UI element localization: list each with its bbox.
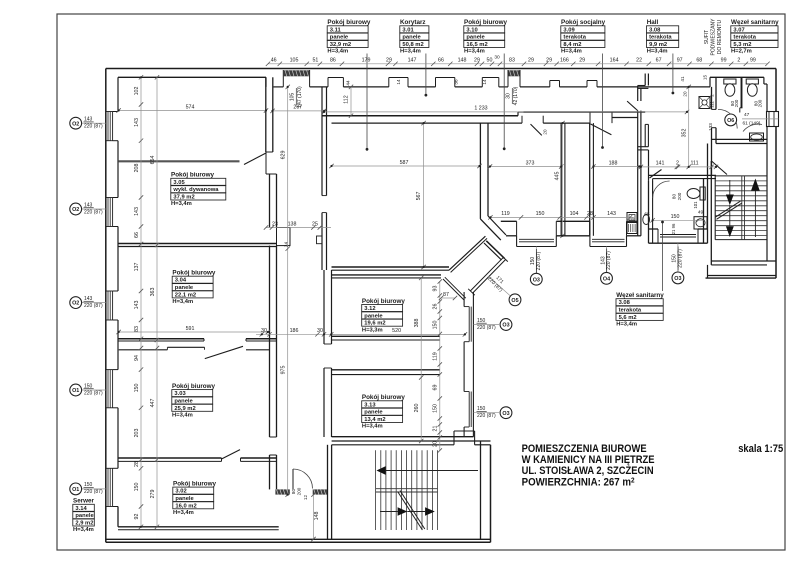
svg-text:29: 29	[386, 58, 392, 64]
svg-text:94: 94	[134, 355, 140, 361]
svg-text:37,9 m2: 37,9 m2	[173, 195, 194, 201]
svg-text:49: 49	[698, 210, 704, 216]
svg-text:50: 50	[487, 58, 493, 64]
svg-text:28: 28	[587, 211, 593, 217]
svg-text:260: 260	[414, 404, 420, 413]
svg-text:629: 629	[280, 151, 286, 160]
svg-text:panele: panele	[364, 410, 383, 416]
svg-text:147: 147	[408, 58, 417, 64]
svg-text:POMIESZCZENIA BIUROWE: POMIESZCZENIA BIUROWE	[522, 443, 647, 455]
svg-text:Serwer: Serwer	[73, 498, 95, 505]
svg-text:21: 21	[432, 426, 438, 432]
svg-text:panele: panele	[174, 399, 193, 405]
svg-text:wykł. dywanowa: wykł. dywanowa	[172, 187, 219, 193]
svg-text:Pokój biurowy: Pokój biurowy	[171, 172, 215, 179]
svg-text:30: 30	[494, 55, 500, 61]
svg-text:terakota: terakota	[649, 35, 672, 41]
svg-text:H=3,4m: H=3,4m	[647, 49, 668, 55]
svg-text:83: 83	[509, 58, 515, 64]
svg-text:166: 166	[560, 58, 569, 64]
svg-text:DO REMONTU: DO REMONTU	[717, 20, 723, 55]
svg-text:220 (87): 220 (87)	[477, 413, 496, 419]
svg-text:220 (87): 220 (87)	[84, 489, 103, 495]
svg-text:O4: O4	[603, 276, 610, 282]
svg-text:66: 66	[134, 232, 140, 238]
svg-text:3.13: 3.13	[364, 402, 376, 408]
svg-text:188: 188	[609, 160, 618, 166]
svg-text:22,1 m2: 22,1 m2	[175, 292, 196, 298]
svg-text:terakota: terakota	[733, 35, 756, 41]
svg-text:2,9 m2: 2,9 m2	[75, 521, 93, 527]
svg-text:19,6 m2: 19,6 m2	[364, 321, 385, 327]
svg-text:220 (87): 220 (87)	[84, 390, 103, 396]
svg-text:Pokój biurowy: Pokój biurowy	[172, 270, 216, 277]
svg-text:3.10: 3.10	[466, 27, 477, 33]
svg-text:69: 69	[432, 385, 438, 391]
svg-text:147 (170): 147 (170)	[297, 86, 303, 108]
svg-text:O3: O3	[674, 276, 681, 282]
svg-text:O2: O2	[72, 207, 79, 213]
svg-text:panele: panele	[75, 513, 94, 519]
svg-text:Hall: Hall	[647, 19, 659, 26]
svg-text:143: 143	[134, 301, 140, 310]
svg-text:3.04: 3.04	[175, 278, 187, 284]
svg-text:H=3,4m: H=3,4m	[173, 510, 194, 516]
svg-text:93: 93	[432, 286, 438, 292]
svg-text:POWIERZCHNIA: 267 m2: POWIERZCHNIA: 267 m2	[522, 476, 635, 488]
svg-text:1 233: 1 233	[474, 106, 487, 112]
svg-text:164: 164	[610, 58, 619, 64]
svg-text:20: 20	[432, 441, 438, 447]
svg-text:36: 36	[454, 79, 459, 85]
svg-text:46: 46	[271, 58, 277, 64]
svg-text:203: 203	[134, 429, 140, 438]
svg-text:200: 200	[734, 99, 739, 107]
svg-text:150: 150	[671, 214, 680, 220]
svg-text:363: 363	[150, 288, 156, 297]
svg-text:29: 29	[546, 58, 552, 64]
svg-text:200: 200	[296, 487, 301, 495]
svg-text:220 (87): 220 (87)	[84, 124, 103, 130]
svg-text:22: 22	[636, 58, 642, 64]
svg-text:67: 67	[656, 58, 662, 64]
svg-text:H=3,4m: H=3,4m	[327, 49, 348, 55]
svg-text:47: 47	[744, 112, 750, 118]
svg-text:150: 150	[432, 404, 438, 413]
svg-text:H=3,4m: H=3,4m	[561, 49, 582, 55]
svg-text:skala 1:75: skala 1:75	[738, 443, 783, 455]
svg-text:83: 83	[134, 326, 140, 332]
svg-text:220 (87): 220 (87)	[536, 251, 542, 270]
svg-text:21 96: 21 96	[671, 223, 676, 234]
svg-text:20: 20	[543, 129, 548, 135]
svg-text:99: 99	[750, 58, 756, 64]
svg-text:29: 29	[474, 58, 480, 64]
svg-text:30: 30	[261, 328, 267, 334]
svg-text:105: 105	[290, 58, 299, 64]
svg-text:W KAMIENICY NA III PIĘTRZE: W KAMIENICY NA III PIĘTRZE	[522, 454, 655, 466]
svg-text:42 (170): 42 (170)	[513, 86, 519, 105]
svg-text:220 (87): 220 (87)	[84, 209, 103, 215]
svg-text:66: 66	[438, 58, 444, 64]
svg-text:5,6 m2: 5,6 m2	[619, 315, 637, 321]
svg-text:H=3,4m: H=3,4m	[171, 201, 192, 207]
svg-text:terakota: terakota	[619, 308, 642, 314]
svg-text:80: 80	[291, 489, 296, 495]
svg-text:Pokój biurowy: Pokój biurowy	[362, 394, 406, 401]
svg-text:Pokój biurowy: Pokój biurowy	[172, 383, 216, 390]
svg-text:Węzeł sanitarny: Węzeł sanitarny	[731, 19, 779, 26]
svg-text:445: 445	[554, 172, 560, 181]
svg-text:587: 587	[400, 160, 409, 166]
svg-text:H=3,3m: H=3,3m	[362, 327, 383, 333]
svg-text:H=3,4m: H=3,4m	[73, 527, 94, 533]
svg-text:15: 15	[702, 75, 707, 81]
svg-text:80: 80	[671, 194, 676, 200]
svg-text:O3: O3	[502, 323, 509, 329]
svg-text:O2: O2	[72, 301, 79, 307]
svg-text:terakota: terakota	[563, 35, 586, 41]
svg-text:388: 388	[414, 319, 420, 328]
svg-text:92: 92	[134, 514, 140, 520]
svg-text:Pokój biurowy: Pokój biurowy	[464, 19, 508, 26]
svg-text:133: 133	[708, 123, 713, 131]
svg-text:3.07: 3.07	[733, 27, 744, 33]
svg-text:O6: O6	[727, 118, 734, 124]
svg-text:51: 51	[312, 58, 318, 64]
svg-text:panele: panele	[364, 313, 383, 319]
svg-text:102: 102	[134, 87, 140, 96]
svg-text:3.02: 3.02	[175, 489, 186, 495]
svg-text:25,9 m2: 25,9 m2	[174, 406, 195, 412]
svg-text:3.05: 3.05	[173, 180, 185, 186]
svg-text:29: 29	[579, 58, 585, 64]
svg-text:101: 101	[693, 201, 698, 209]
svg-text:3.08: 3.08	[649, 27, 661, 33]
svg-text:200: 200	[677, 192, 682, 200]
svg-text:200: 200	[758, 99, 763, 107]
svg-text:Pokój biurowy: Pokój biurowy	[327, 19, 371, 26]
svg-text:220 (87): 220 (87)	[477, 325, 496, 331]
svg-text:H=3,4m: H=3,4m	[172, 299, 193, 305]
svg-text:28: 28	[134, 461, 140, 467]
svg-text:111: 111	[690, 161, 698, 167]
svg-text:143: 143	[134, 118, 140, 127]
svg-text:112: 112	[344, 95, 350, 103]
svg-text:Korytarz: Korytarz	[400, 19, 426, 26]
svg-text:179: 179	[362, 58, 371, 64]
svg-text:H=2,7m: H=2,7m	[731, 49, 752, 55]
svg-text:3.14: 3.14	[75, 506, 87, 512]
svg-text:3.03: 3.03	[174, 391, 186, 397]
svg-text:Pokój biurowy: Pokój biurowy	[173, 481, 217, 488]
svg-text:3.12: 3.12	[364, 306, 375, 312]
svg-text:25: 25	[312, 221, 318, 227]
svg-text:23: 23	[272, 221, 278, 227]
svg-text:143: 143	[607, 211, 616, 217]
svg-text:30: 30	[317, 328, 323, 334]
svg-text:975: 975	[280, 366, 286, 375]
svg-text:3.08: 3.08	[619, 300, 631, 306]
svg-text:220 (87): 220 (87)	[606, 251, 612, 270]
svg-text:65: 65	[644, 212, 650, 218]
svg-text:3.01: 3.01	[402, 27, 414, 33]
svg-text:H=3,4m: H=3,4m	[400, 49, 421, 55]
svg-text:panele: panele	[175, 285, 194, 291]
svg-text:H=3,4m: H=3,4m	[362, 424, 383, 430]
svg-text:12: 12	[303, 495, 308, 501]
svg-text:13,4 m2: 13,4 m2	[364, 417, 385, 423]
svg-text:SUFIT: SUFIT	[704, 30, 710, 44]
svg-text:352: 352	[681, 129, 687, 138]
svg-text:119: 119	[501, 211, 509, 217]
svg-text:148: 148	[314, 512, 320, 521]
svg-text:220 (87): 220 (87)	[678, 249, 684, 268]
svg-text:O3: O3	[502, 411, 509, 417]
svg-text:O1: O1	[72, 487, 79, 493]
svg-text:111: 111	[710, 101, 715, 108]
svg-text:279: 279	[150, 490, 156, 499]
svg-text:654: 654	[150, 156, 156, 165]
svg-text:150: 150	[536, 211, 545, 217]
svg-text:H=3,4m: H=3,4m	[172, 413, 193, 419]
svg-text:Pokój socjalny: Pokój socjalny	[561, 19, 606, 26]
svg-text:29: 29	[528, 58, 534, 64]
svg-text:104: 104	[570, 211, 579, 217]
svg-text:138: 138	[288, 221, 297, 227]
svg-text:O1: O1	[72, 388, 79, 394]
svg-text:591: 591	[186, 326, 195, 332]
svg-text:148: 148	[458, 58, 467, 64]
svg-text:O3: O3	[533, 277, 540, 283]
svg-text:9,9 m2: 9,9 m2	[649, 42, 667, 48]
svg-text:567: 567	[416, 192, 422, 201]
svg-text:97: 97	[677, 58, 683, 64]
svg-text:137: 137	[134, 263, 140, 272]
svg-text:5,3 m2: 5,3 m2	[733, 42, 751, 48]
svg-text:61 (149): 61 (149)	[743, 121, 761, 127]
svg-text:41: 41	[680, 76, 685, 82]
svg-text:panele: panele	[402, 35, 421, 41]
svg-text:574: 574	[186, 104, 195, 110]
svg-text:44: 44	[346, 80, 351, 86]
svg-text:186: 186	[290, 328, 299, 334]
svg-text:14: 14	[396, 79, 401, 85]
svg-text:3.09: 3.09	[563, 27, 575, 33]
svg-text:50,8 m2: 50,8 m2	[402, 42, 423, 48]
svg-text:panele: panele	[466, 35, 485, 41]
svg-text:Pokój biurowy: Pokój biurowy	[362, 298, 406, 305]
svg-text:20: 20	[682, 91, 687, 97]
svg-text:99: 99	[721, 58, 727, 64]
svg-text:150: 150	[134, 483, 140, 492]
svg-text:14: 14	[482, 79, 487, 85]
svg-text:panele: panele	[330, 35, 349, 41]
svg-text:8,4 m2: 8,4 m2	[563, 42, 581, 48]
svg-text:447: 447	[150, 399, 156, 408]
svg-text:32,9 m2: 32,9 m2	[330, 42, 351, 48]
svg-text:105: 105	[290, 93, 296, 102]
svg-text:26: 26	[432, 304, 438, 310]
svg-text:208: 208	[134, 164, 140, 173]
svg-text:O2: O2	[72, 121, 79, 127]
svg-text:3.11: 3.11	[330, 27, 342, 33]
svg-text:86: 86	[330, 58, 336, 64]
svg-text:143: 143	[134, 207, 140, 216]
svg-text:30: 30	[506, 93, 512, 99]
svg-text:520: 520	[392, 328, 401, 334]
svg-text:H=3,4m: H=3,4m	[464, 49, 485, 55]
svg-text:2: 2	[737, 58, 740, 64]
svg-text:panele: panele	[175, 496, 194, 502]
svg-text:150: 150	[432, 321, 438, 330]
svg-text:220 (87): 220 (87)	[84, 303, 103, 309]
svg-text:87: 87	[443, 292, 449, 298]
svg-text:150: 150	[134, 384, 140, 393]
svg-text:PODWIESZANY: PODWIESZANY	[711, 18, 717, 56]
svg-text:O5: O5	[511, 298, 518, 304]
svg-text:141: 141	[656, 161, 665, 167]
svg-text:16,0 m2: 16,0 m2	[175, 503, 196, 509]
svg-text:373: 373	[526, 160, 535, 166]
svg-text:119: 119	[432, 352, 438, 360]
svg-text:68: 68	[696, 58, 702, 64]
svg-text:16,5 m2: 16,5 m2	[466, 42, 487, 48]
svg-text:H=3,4m: H=3,4m	[616, 322, 637, 328]
svg-text:Węzeł sanitarny: Węzeł sanitarny	[616, 292, 664, 299]
svg-text:2: 2	[676, 161, 679, 167]
svg-text:UL. STOISŁAWA 2, SZCZECIN: UL. STOISŁAWA 2, SZCZECIN	[522, 465, 654, 477]
